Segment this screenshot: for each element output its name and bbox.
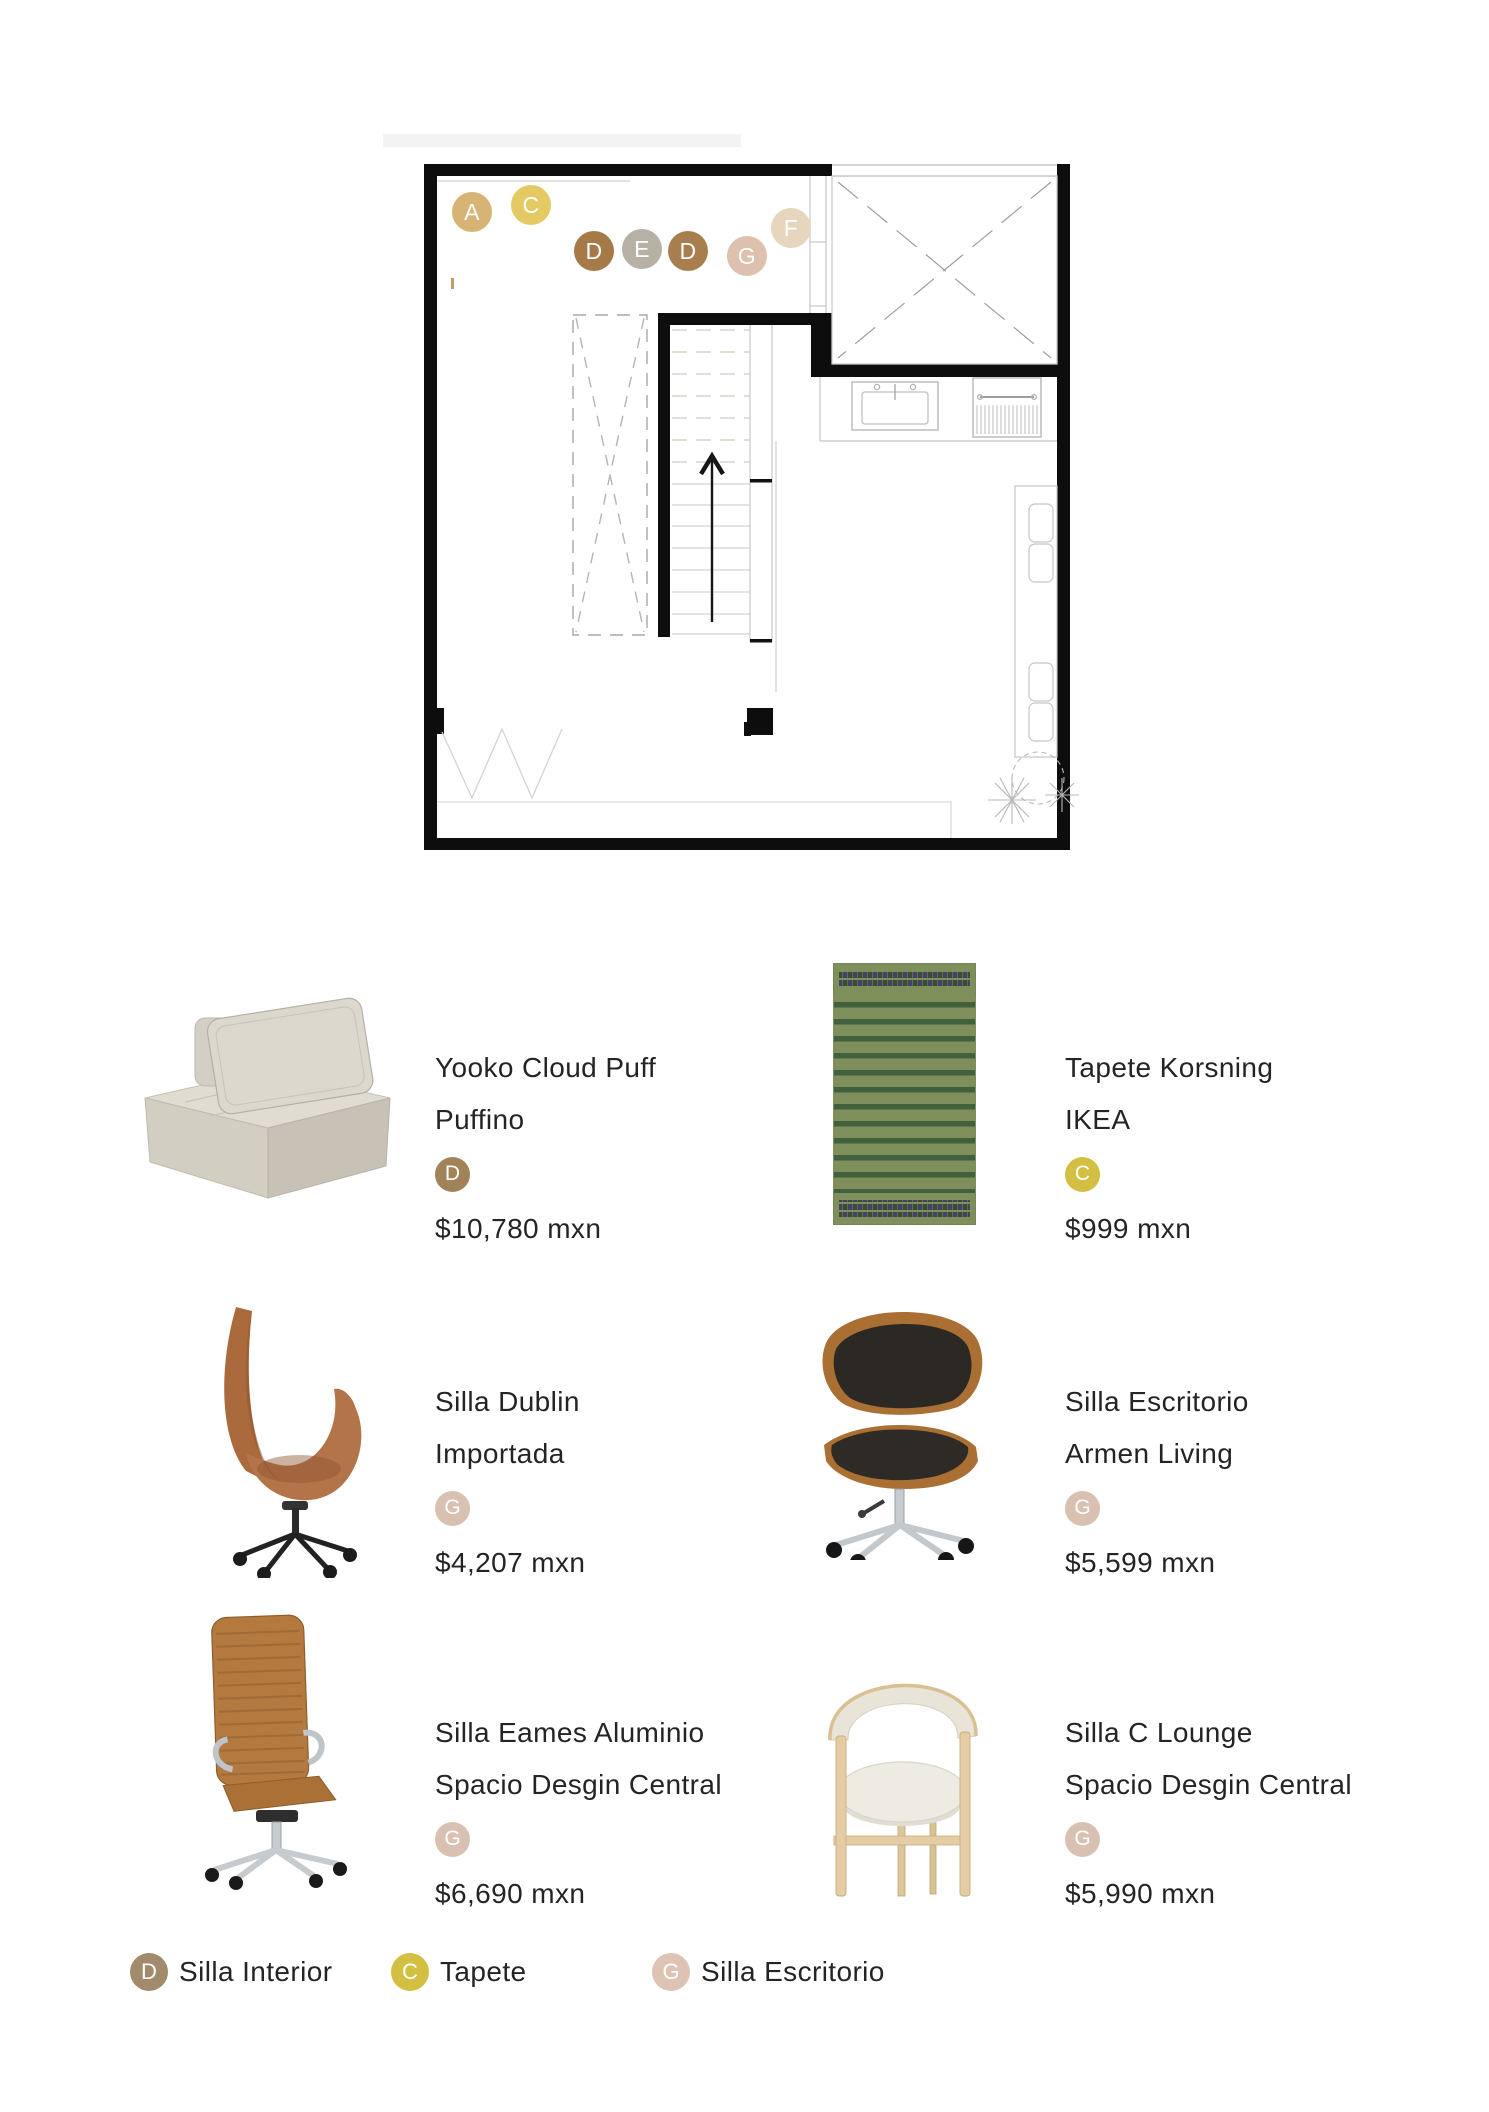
moodboard-page: { "floor_plan": { "markers": [ {"label":…: [0, 0, 1489, 2112]
sink-icon: [852, 382, 938, 430]
product-brand: Puffino: [435, 1094, 865, 1146]
legend-item-silla-escritorio: G Silla Escritorio: [652, 1952, 885, 1992]
plan-marker-e: E: [622, 229, 662, 269]
product-card-korsning: Tapete Korsning IKEA C $999 mxn: [1065, 1042, 1489, 1256]
product-price: $999 mxn: [1065, 1202, 1489, 1256]
tan-highback-office-chair-image: [186, 1612, 354, 1894]
legend-label: Silla Interior: [179, 1956, 332, 1988]
product-card-yooko: Yooko Cloud Puff Puffino D $10,780 mxn: [435, 1042, 865, 1256]
plan-marker-g: G: [727, 236, 767, 276]
product-price: $6,690 mxn: [435, 1867, 865, 1921]
product-price: $10,780 mxn: [435, 1202, 865, 1256]
product-badge: G: [435, 1491, 470, 1526]
product-badge: C: [1065, 1157, 1100, 1192]
product-badge: G: [1065, 1822, 1100, 1857]
cognac-swivel-chair-image: [196, 1303, 366, 1578]
product-name: Tapete Korsning: [1065, 1042, 1489, 1094]
product-badge: D: [435, 1157, 470, 1192]
legend-badge-d: D: [130, 1953, 168, 1991]
plan-marker-f: F: [771, 208, 811, 248]
wardrobe-zigzag: [442, 729, 562, 798]
product-card-escritorio: Silla Escritorio Armen Living G $5,599 m…: [1065, 1376, 1489, 1590]
legend-badge-g: G: [652, 1953, 690, 1991]
legend-item-silla-interior: D Silla Interior: [130, 1952, 332, 1992]
product-card-eames: Silla Eames Aluminio Spacio Desgin Centr…: [435, 1707, 865, 1921]
product-brand: Spacio Desgin Central: [435, 1759, 865, 1811]
plan-marker-a: A: [452, 192, 492, 232]
floor-plan: [0, 0, 1489, 900]
plan-marker-d2: D: [668, 231, 708, 271]
plan-marker-d1: D: [574, 231, 614, 271]
plan-marker-c: C: [511, 185, 551, 225]
product-brand: Armen Living: [1065, 1428, 1489, 1480]
legend-item-tapete: C Tapete: [391, 1952, 526, 1992]
product-card-dublin: Silla Dublin Importada G $4,207 mxn: [435, 1376, 865, 1590]
product-badge: G: [435, 1822, 470, 1857]
door-tick: [451, 278, 454, 289]
product-brand: Importada: [435, 1428, 865, 1480]
legend-label: Silla Escritorio: [701, 1956, 885, 1988]
terrace-line: [437, 802, 951, 838]
puff-lounge-chair-image: [140, 970, 395, 1205]
stair-arrow: [701, 456, 723, 622]
product-brand: Spacio Desgin Central: [1065, 1759, 1489, 1811]
product-name: Yooko Cloud Puff: [435, 1042, 865, 1094]
product-card-clounge: Silla C Lounge Spacio Desgin Central G $…: [1065, 1707, 1489, 1921]
closet-dashed: [573, 315, 647, 635]
product-name: Silla C Lounge: [1065, 1707, 1489, 1759]
product-price: $5,990 mxn: [1065, 1867, 1489, 1921]
stove-icon: [973, 378, 1041, 437]
product-name: Silla Eames Aluminio: [435, 1707, 865, 1759]
product-price: $4,207 mxn: [435, 1536, 865, 1590]
product-price: $5,599 mxn: [1065, 1536, 1489, 1590]
staircase: [672, 325, 772, 643]
product-brand: IKEA: [1065, 1094, 1489, 1146]
legend-badge-c: C: [391, 1953, 429, 1991]
bar-counter: [1015, 486, 1057, 757]
product-badge: G: [1065, 1491, 1100, 1526]
legend-label: Tapete: [440, 1956, 526, 1988]
elevator-shaft: [810, 165, 1057, 364]
product-name: Silla Escritorio: [1065, 1376, 1489, 1428]
product-name: Silla Dublin: [435, 1376, 865, 1428]
